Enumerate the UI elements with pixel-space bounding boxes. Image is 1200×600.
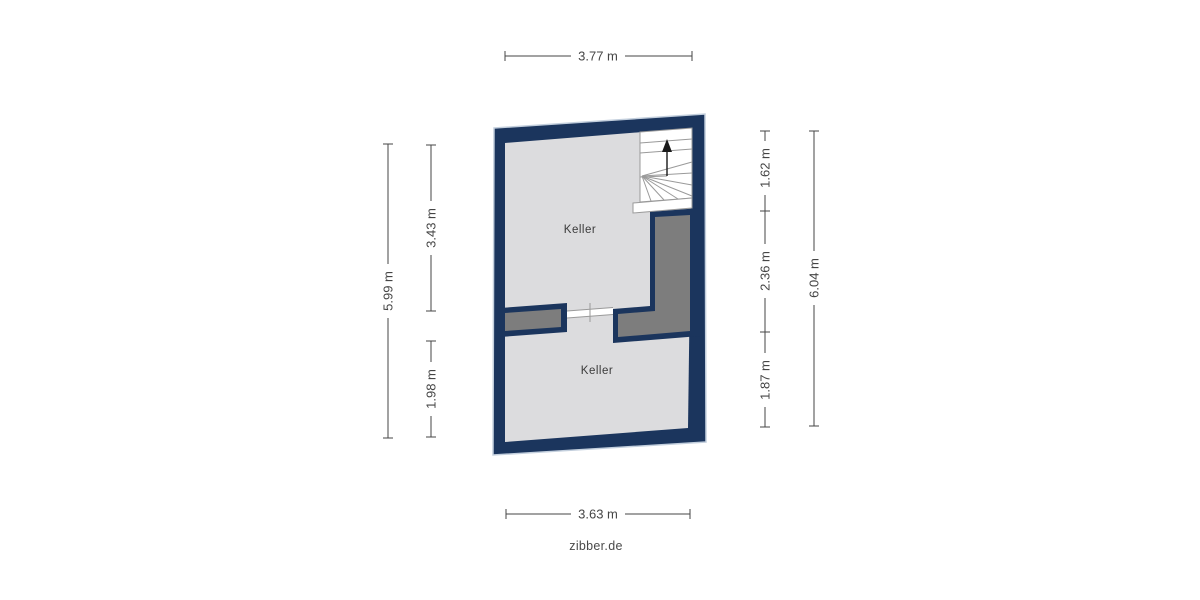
dimension-top: 3.77 m <box>505 49 692 64</box>
dimension-left-inner-bottom-value: 1.98 m <box>424 369 439 409</box>
dimension-right-inner-middle-value: 2.36 m <box>758 251 773 291</box>
dimension-bottom-value: 3.63 m <box>578 507 618 522</box>
dimension-bottom: 3.63 m <box>506 507 690 522</box>
floorplan-page: Keller Keller 3.77 m 3.63 m 5.99 m 3. <box>0 0 1200 600</box>
watermark: zibber.de <box>569 539 622 553</box>
dimension-left-inner-top-value: 3.43 m <box>424 208 439 248</box>
dimension-right-inner-top-value: 1.62 m <box>758 148 773 188</box>
staircase <box>633 128 692 213</box>
dimension-left-outer-value: 5.99 m <box>381 271 396 311</box>
dimension-right-inner-bottom-value: 1.87 m <box>758 360 773 400</box>
dimension-left-outer: 5.99 m <box>381 144 396 438</box>
room-label-lower: Keller <box>581 365 613 377</box>
room-label-upper: Keller <box>564 224 596 236</box>
floorplan-drawing: Keller Keller 3.77 m 3.63 m 5.99 m 3. <box>0 0 1200 600</box>
dimension-right-outer: 6.04 m <box>807 131 822 426</box>
dimension-left-inner-top: 3.43 m <box>424 145 439 311</box>
dimension-right-outer-value: 6.04 m <box>807 258 822 298</box>
dimension-left-inner-bottom: 1.98 m <box>424 341 439 437</box>
dimension-right-inner: 1.62 m 2.36 m 1.87 m <box>758 131 773 427</box>
dimension-top-value: 3.77 m <box>578 49 618 64</box>
